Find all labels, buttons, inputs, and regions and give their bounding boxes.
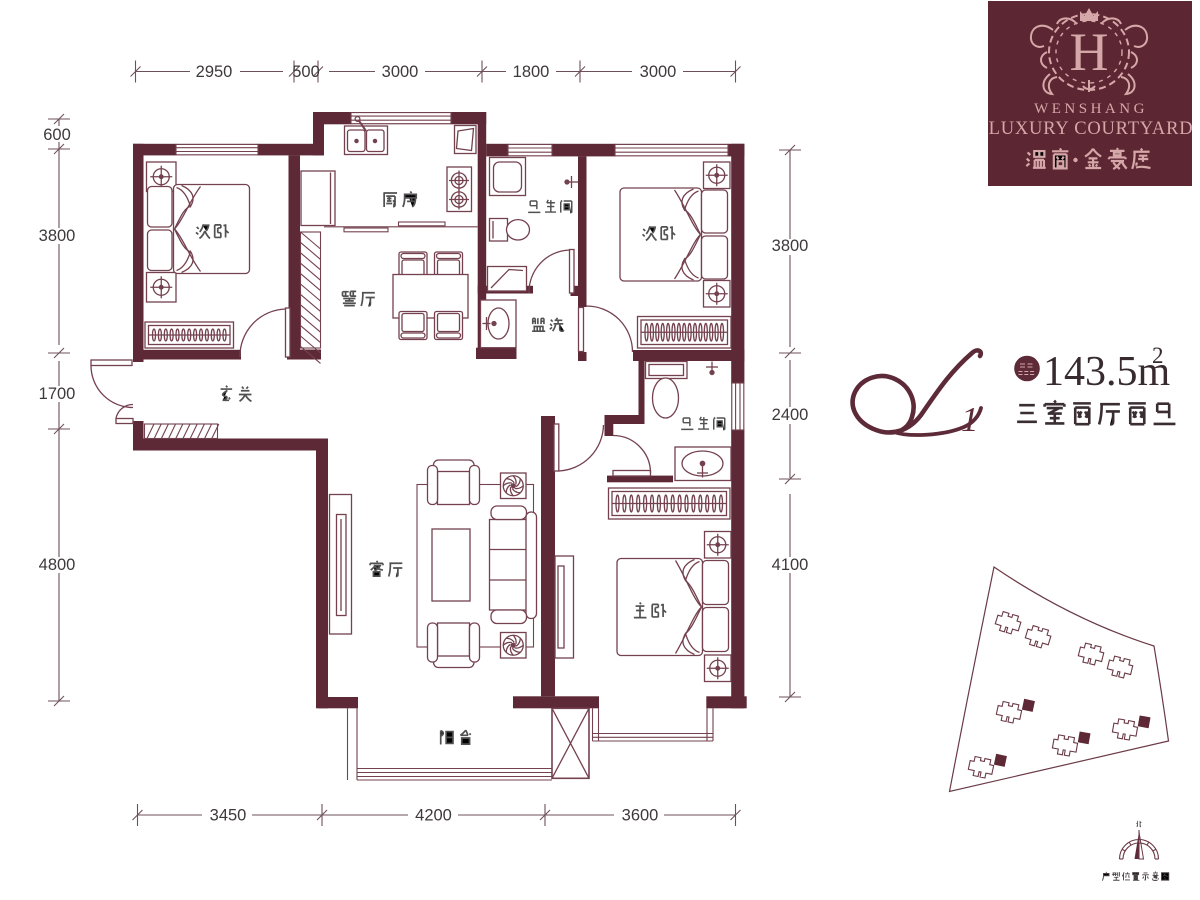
svg-text:2: 2: [1152, 343, 1164, 368]
svg-text:3450: 3450: [210, 807, 247, 825]
svg-text:2950: 2950: [196, 63, 233, 81]
svg-text:3800: 3800: [772, 237, 809, 255]
svg-text:500: 500: [292, 63, 320, 81]
svg-text:3600: 3600: [622, 807, 659, 825]
svg-text:4800: 4800: [39, 556, 76, 574]
svg-text:1800: 1800: [513, 63, 550, 81]
svg-text:H: H: [1070, 22, 1109, 82]
svg-text:4100: 4100: [772, 556, 809, 574]
svg-text:600: 600: [43, 126, 71, 144]
svg-text:WENSHANG: WENSHANG: [1034, 101, 1148, 117]
svg-text:3000: 3000: [382, 63, 419, 81]
svg-text:1: 1: [961, 400, 979, 439]
svg-text:1700: 1700: [39, 385, 76, 403]
svg-text:LUXURY COURTYARD: LUXURY COURTYARD: [989, 119, 1194, 139]
svg-text:3000: 3000: [640, 63, 677, 81]
svg-text:4200: 4200: [415, 807, 452, 825]
svg-text:3800: 3800: [39, 227, 76, 245]
svg-text:2400: 2400: [772, 406, 809, 424]
